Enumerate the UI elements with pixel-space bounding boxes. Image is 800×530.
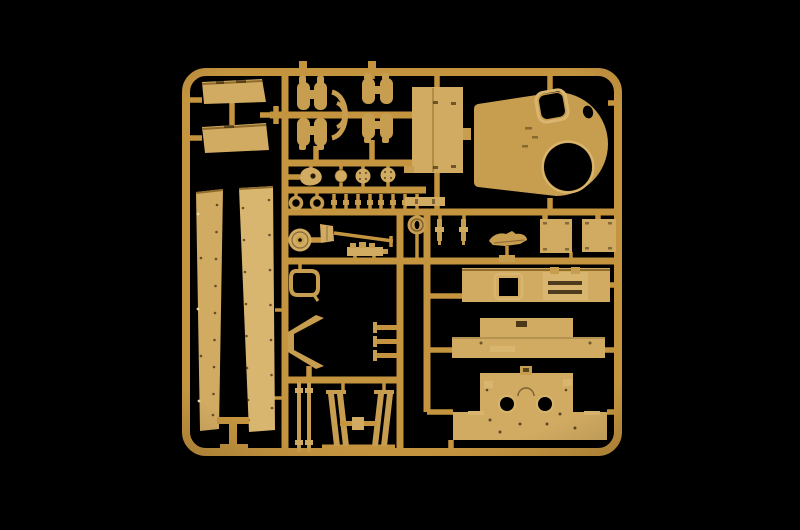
support-rods [295,382,313,452]
superstructure-panel [452,318,605,358]
periscope-pair-2 [297,118,327,150]
panel-bottom-connector [217,417,249,453]
radiator-box [412,87,471,173]
sprue-photo [0,0,800,530]
mg-strip [347,242,388,256]
idler-wheel [408,216,427,235]
gate-nub [299,61,307,73]
small-plate [404,166,414,173]
small-bar [405,197,445,206]
connector-block [352,417,364,430]
t-bars [373,322,400,361]
v-bracket [288,315,324,369]
hull-bottom-panel [453,366,607,440]
side-skirt-panel-left [196,189,223,431]
gauge-wheel-2 [356,169,371,184]
road-wheel [289,229,312,252]
periscope-pair-3 [362,73,393,104]
side-skirt-panel-right [239,186,275,432]
towing-rings [291,198,323,209]
hanging-pin-2 [459,219,468,245]
shovel [320,224,393,247]
slanted-struts [326,390,394,446]
turret-roof [474,89,608,196]
hanging-pin-1 [435,219,444,245]
gate-nub [368,61,376,73]
stowage-bin-1 [202,79,266,104]
hatch-loop [291,271,318,301]
flat-plate-2 [582,219,616,252]
periscope-pair-1 [297,76,327,110]
stowage-bin-2 [202,123,269,153]
gauge-wheel-1 [335,170,347,182]
glacis-panel [462,267,610,302]
flat-plate-1 [540,219,572,253]
teardrop-part [300,168,322,186]
gauge-wheel-3 [381,168,396,183]
sprue-svg [0,0,800,530]
